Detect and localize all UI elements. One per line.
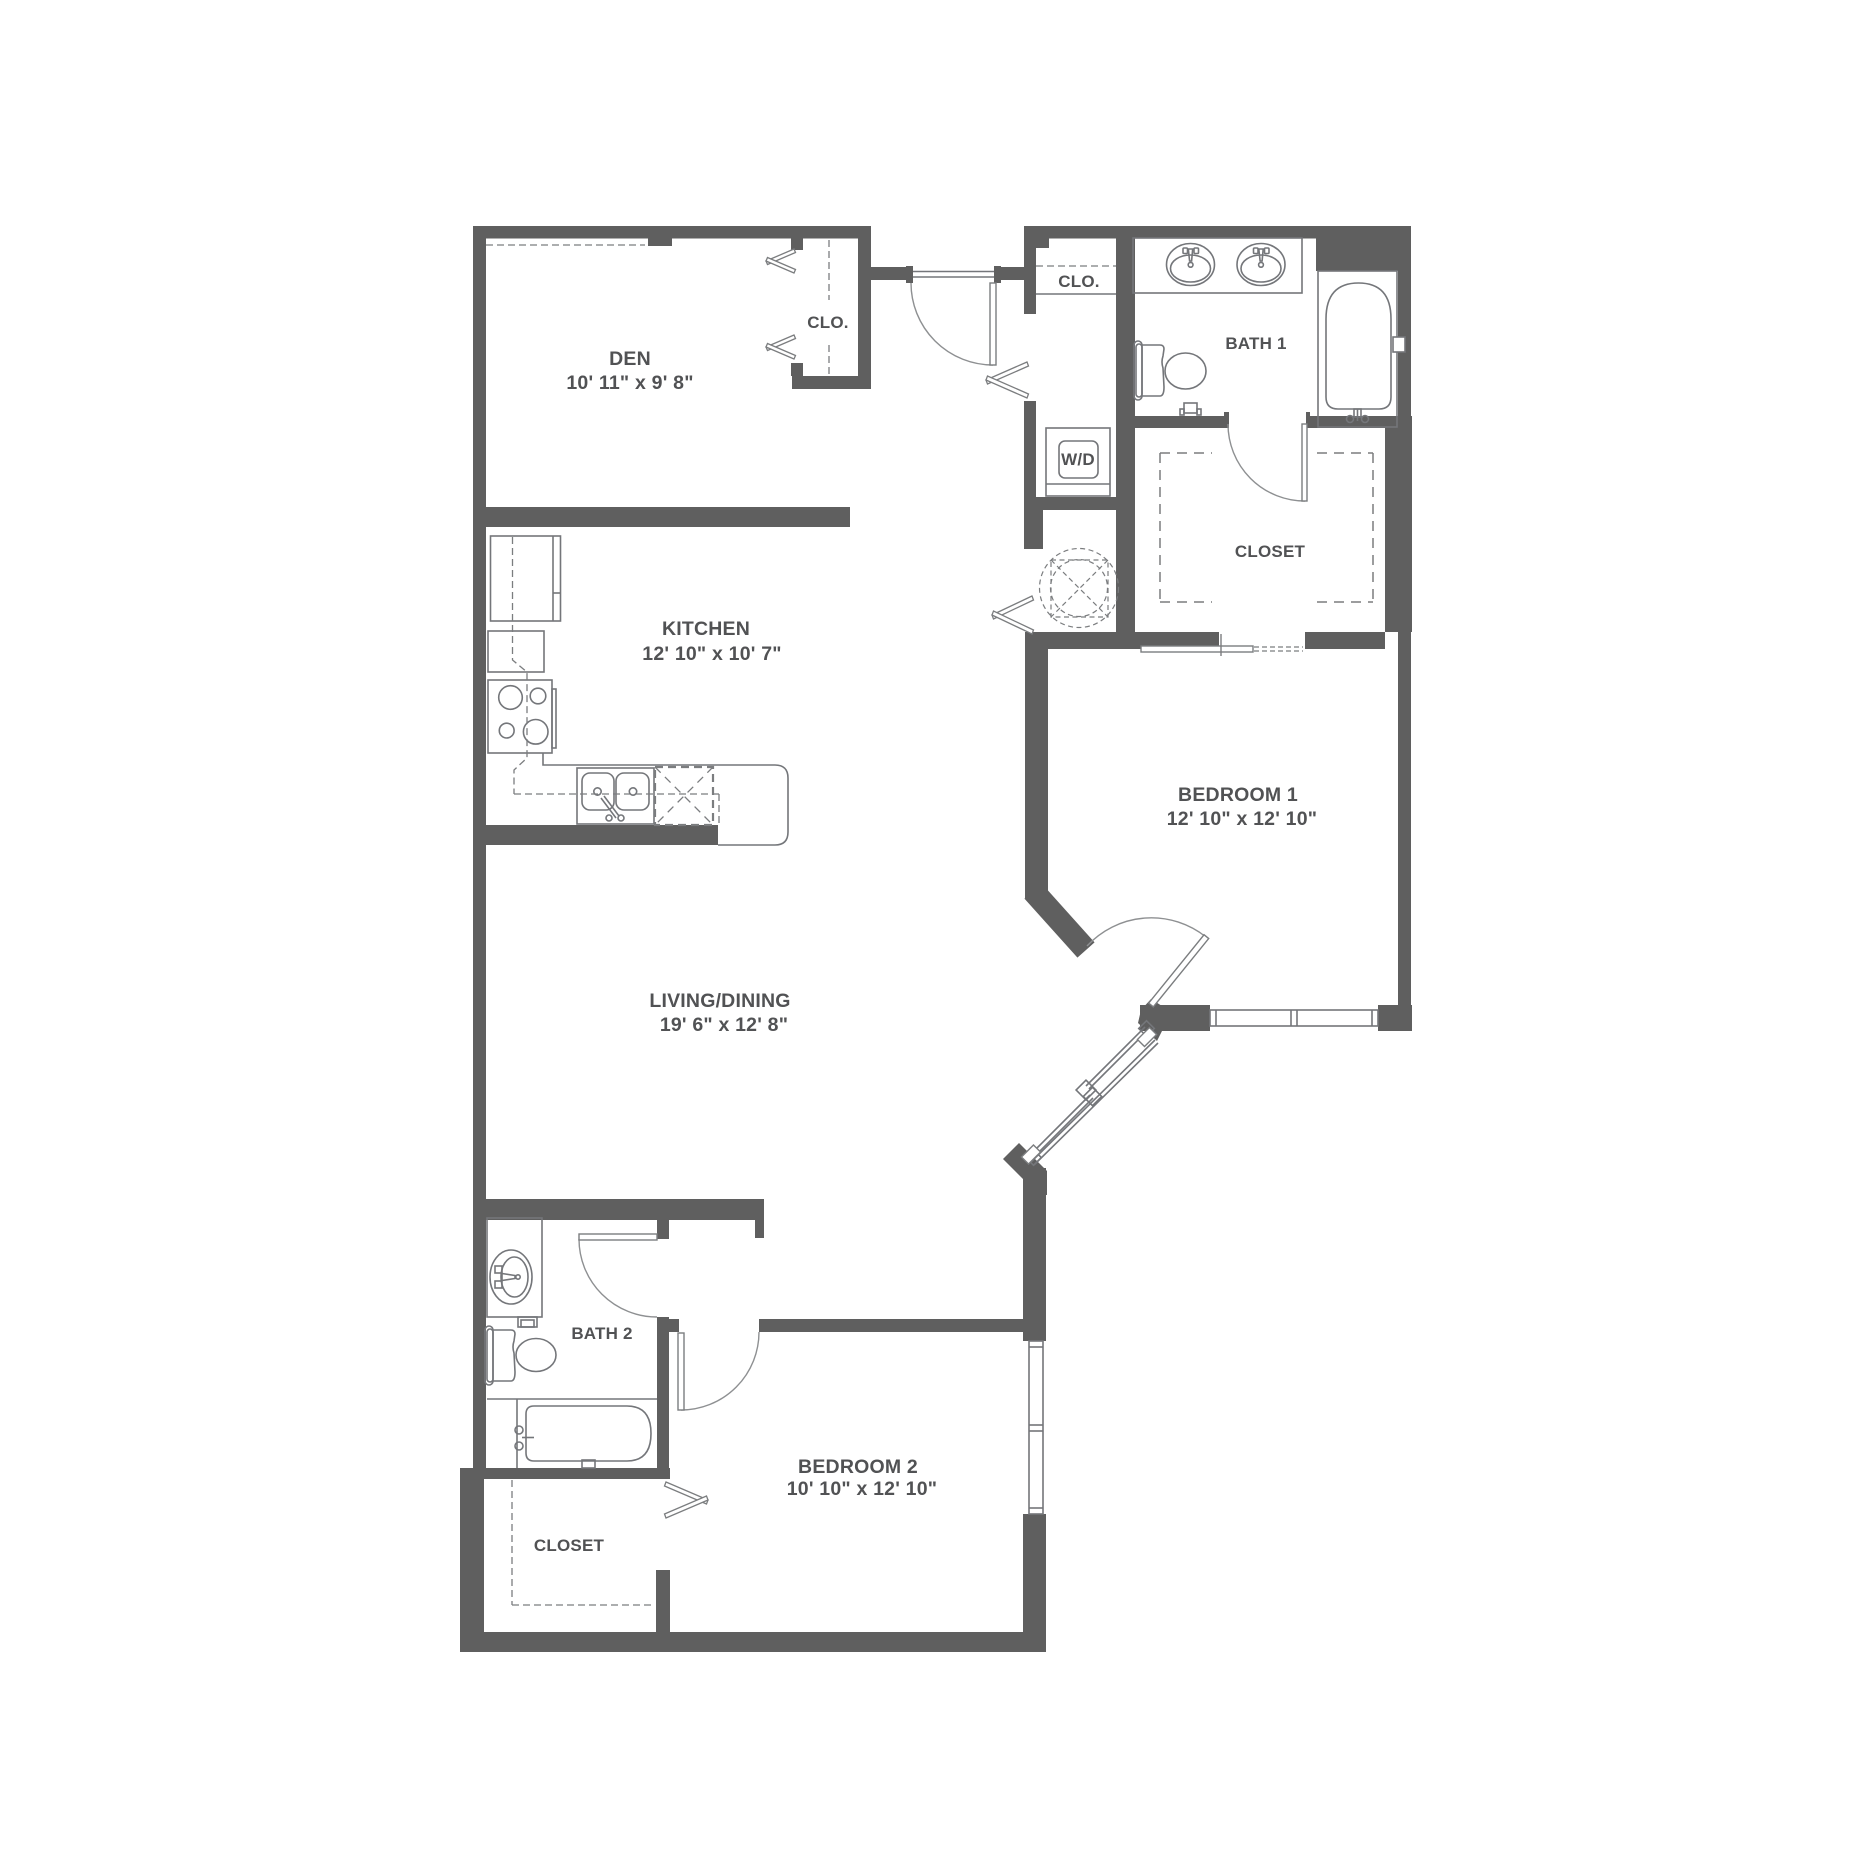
svg-text:19' 6" x 12' 8": 19' 6" x 12' 8"	[660, 1014, 788, 1036]
svg-text:BATH 2: BATH 2	[571, 1324, 632, 1343]
svg-text:12' 10" x 10' 7": 12' 10" x 10' 7"	[642, 643, 781, 665]
svg-text:BEDROOM 1: BEDROOM 1	[1178, 784, 1298, 806]
svg-text:LIVING/DINING: LIVING/DINING	[649, 990, 790, 1012]
svg-text:12' 10" x 12' 10": 12' 10" x 12' 10"	[1167, 808, 1317, 830]
svg-text:10' 11" x 9' 8": 10' 11" x 9' 8"	[566, 372, 693, 394]
svg-text:BEDROOM 2: BEDROOM 2	[798, 1456, 918, 1478]
svg-text:CLO.: CLO.	[1058, 272, 1099, 291]
svg-text:10' 10" x 12' 10": 10' 10" x 12' 10"	[787, 1478, 937, 1500]
svg-text:KITCHEN: KITCHEN	[662, 618, 750, 640]
svg-text:CLO.: CLO.	[807, 313, 848, 332]
svg-text:CLOSET: CLOSET	[534, 1536, 605, 1555]
svg-text:DEN: DEN	[609, 348, 651, 370]
svg-text:BATH 1: BATH 1	[1225, 334, 1286, 353]
svg-text:CLOSET: CLOSET	[1235, 542, 1306, 561]
svg-text:W/D: W/D	[1061, 450, 1095, 469]
